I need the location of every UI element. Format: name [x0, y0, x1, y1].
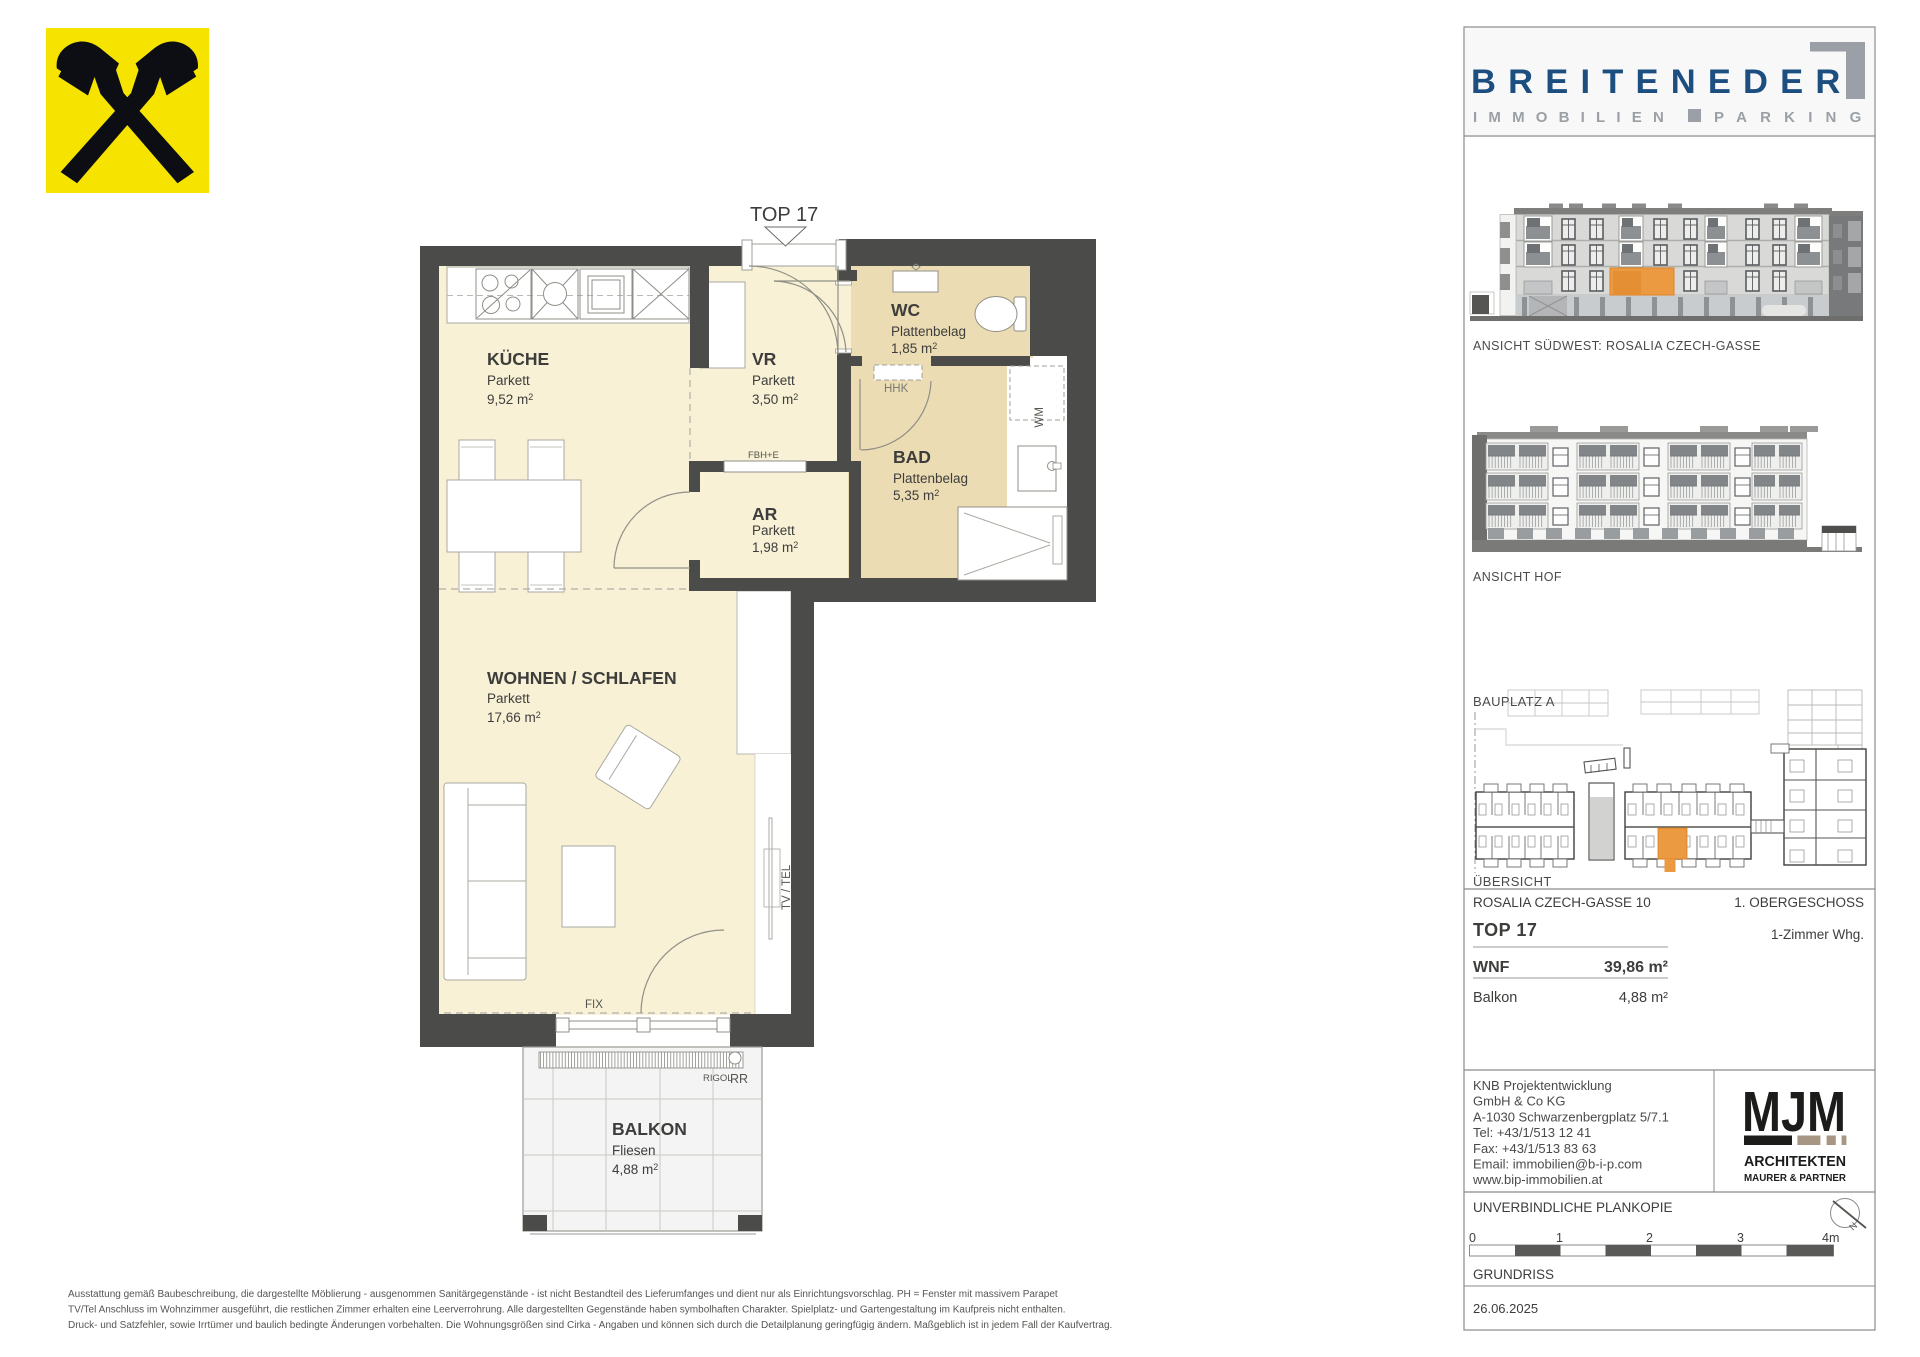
svg-text:www.bip-immobilien.at: www.bip-immobilien.at	[1472, 1172, 1603, 1187]
svg-text:0: 0	[1469, 1231, 1476, 1245]
svg-text:A-1030 Schwarzenbergplatz 5/7.: A-1030 Schwarzenbergplatz 5/7.1	[1473, 1109, 1669, 1124]
svg-text:Email: immobilien@b-i-p.com: Email: immobilien@b-i-p.com	[1473, 1157, 1642, 1172]
svg-text:Balkon: Balkon	[1473, 990, 1517, 1006]
svg-text:WC: WC	[891, 300, 921, 320]
svg-text:2: 2	[1646, 1231, 1653, 1245]
svg-text:GRUNDRISS: GRUNDRISS	[1473, 1267, 1554, 1282]
svg-text:5,35 m2: 5,35 m2	[893, 488, 939, 503]
svg-text:Fliesen: Fliesen	[612, 1143, 656, 1158]
svg-text:ARCHITEKTEN: ARCHITEKTEN	[1744, 1154, 1846, 1170]
svg-text:GmbH & Co KG: GmbH & Co KG	[1473, 1094, 1565, 1109]
svg-text:RR: RR	[730, 1072, 748, 1086]
svg-text:Plattenbelag: Plattenbelag	[891, 324, 966, 339]
svg-text:1: 1	[1556, 1231, 1563, 1245]
svg-text:Plattenbelag: Plattenbelag	[893, 471, 968, 486]
svg-text:KÜCHE: KÜCHE	[487, 349, 549, 369]
svg-text:4,88 m2: 4,88 m2	[612, 1162, 658, 1177]
svg-text:BAD: BAD	[893, 447, 931, 467]
svg-text:TV/Tel Anschluss im Wohnzimmer: TV/Tel Anschluss im Wohnzimmer ausgeführ…	[68, 1305, 1066, 1316]
svg-text:9,52 m2: 9,52 m2	[487, 392, 533, 407]
svg-text:ÜBERSICHT: ÜBERSICHT	[1473, 874, 1552, 889]
svg-text:BREITENEDER: BREITENEDER	[1471, 63, 1852, 101]
svg-text:AR: AR	[752, 504, 778, 524]
svg-text:39,86 m²: 39,86 m²	[1604, 959, 1668, 976]
svg-text:1-Zimmer Whg.: 1-Zimmer Whg.	[1771, 927, 1864, 942]
svg-text:FBH+E: FBH+E	[748, 450, 779, 461]
svg-text:FIX: FIX	[585, 999, 603, 1011]
svg-text:RIGOL: RIGOL	[703, 1073, 733, 1084]
svg-text:MAURER & PARTNER: MAURER & PARTNER	[1744, 1172, 1846, 1184]
svg-text:Parkett: Parkett	[487, 373, 530, 388]
svg-text:BALKON: BALKON	[612, 1119, 687, 1139]
svg-text:PARKING: PARKING	[1714, 109, 1874, 126]
svg-text:4m: 4m	[1822, 1231, 1839, 1245]
svg-text:VR: VR	[752, 349, 777, 369]
svg-text:26.06.2025: 26.06.2025	[1473, 1301, 1538, 1316]
svg-text:BAUPLATZ A: BAUPLATZ A	[1473, 694, 1555, 709]
svg-text:Tel: +43/1/513 12 41: Tel: +43/1/513 12 41	[1473, 1125, 1591, 1140]
svg-text:3,50 m2: 3,50 m2	[752, 392, 798, 407]
svg-text:Ausstattung gemäß Baubeschreib: Ausstattung gemäß Baubeschreibung, die d…	[68, 1289, 1058, 1300]
svg-text:ANSICHT HOF: ANSICHT HOF	[1473, 570, 1562, 584]
svg-text:17,66 m2: 17,66 m2	[487, 710, 541, 725]
svg-text:TOP 17: TOP 17	[750, 204, 818, 226]
svg-text:ROSALIA CZECH-GASSE 10: ROSALIA CZECH-GASSE 10	[1473, 895, 1651, 910]
svg-text:Fax: +43/1/513 83 63: Fax: +43/1/513 83 63	[1473, 1141, 1596, 1156]
svg-text:MJM: MJM	[1742, 1080, 1846, 1144]
svg-text:WNF: WNF	[1473, 959, 1510, 976]
svg-text:ANSICHT SÜDWEST: ROSALIA CZECH: ANSICHT SÜDWEST: ROSALIA CZECH-GASSE	[1473, 339, 1761, 353]
svg-text:1,85 m2: 1,85 m2	[891, 341, 937, 356]
svg-text:TV / TEL: TV / TEL	[781, 864, 793, 910]
svg-text:Parkett: Parkett	[752, 523, 795, 538]
svg-text:KNB Projektentwicklung: KNB Projektentwicklung	[1473, 1078, 1612, 1093]
svg-text:WOHNEN / SCHLAFEN: WOHNEN / SCHLAFEN	[487, 668, 677, 688]
svg-text:HHK: HHK	[884, 383, 909, 395]
svg-text:IMMOBILIEN: IMMOBILIEN	[1473, 109, 1675, 126]
svg-text:Parkett: Parkett	[487, 691, 530, 706]
svg-text:Parkett: Parkett	[752, 373, 795, 388]
svg-text:UNVERBINDLICHE PLANKOPIE: UNVERBINDLICHE PLANKOPIE	[1473, 1200, 1673, 1215]
svg-text:Druck- und Satzfehler, sowie I: Druck- und Satzfehler, sowie Irrtümer un…	[68, 1319, 1112, 1331]
svg-text:4,88 m²: 4,88 m²	[1619, 990, 1668, 1006]
svg-text:1,98 m2: 1,98 m2	[752, 540, 798, 555]
svg-text:WM: WM	[1034, 407, 1046, 427]
svg-text:TOP 17: TOP 17	[1473, 920, 1537, 940]
svg-text:1. OBERGESCHOSS: 1. OBERGESCHOSS	[1734, 895, 1864, 910]
svg-text:3: 3	[1737, 1231, 1744, 1245]
